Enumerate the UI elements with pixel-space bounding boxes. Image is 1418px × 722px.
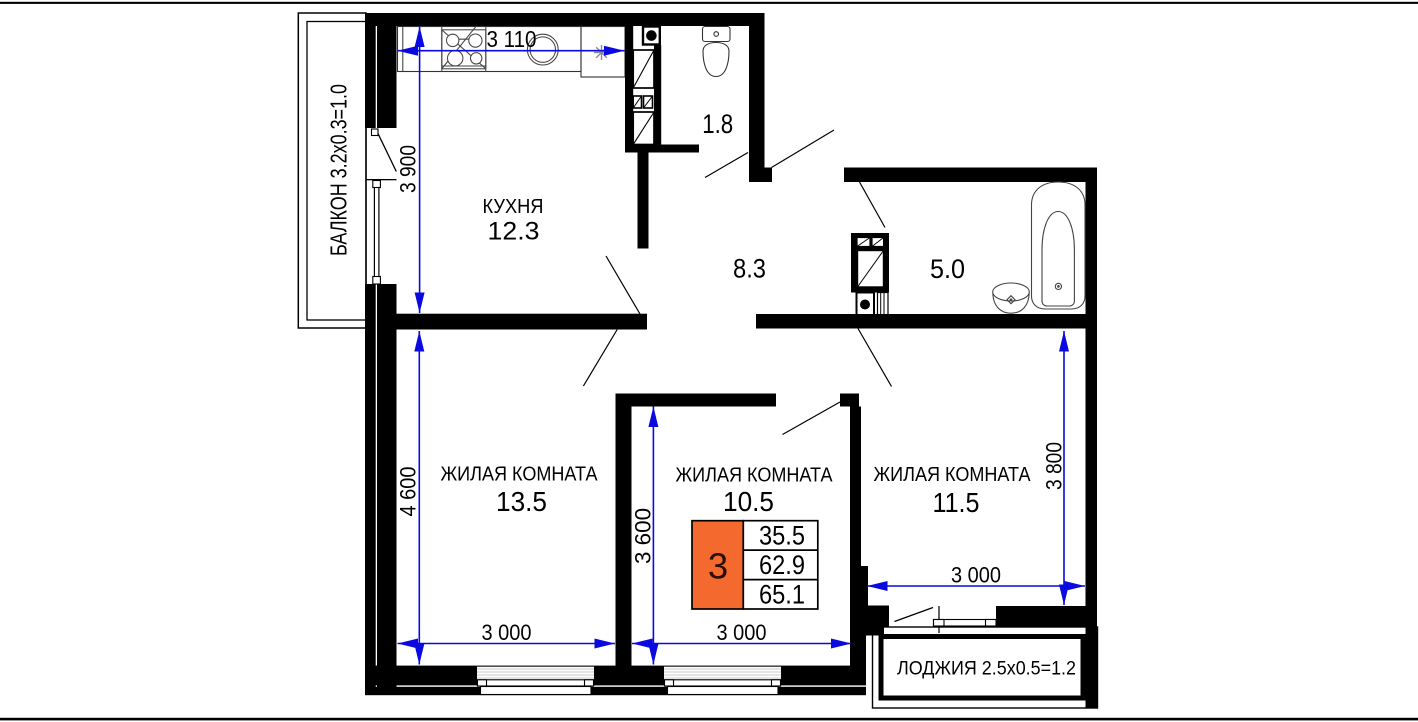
svg-text:3 110: 3 110 bbox=[487, 26, 537, 52]
svg-text:62.9: 62.9 bbox=[759, 550, 805, 580]
svg-text:ЖИЛАЯ КОМНАТА: ЖИЛАЯ КОМНАТА bbox=[441, 463, 598, 486]
svg-text:12.3: 12.3 bbox=[488, 218, 540, 246]
svg-text:3: 3 bbox=[708, 546, 728, 587]
svg-text:11.5: 11.5 bbox=[933, 487, 980, 518]
svg-text:8.3: 8.3 bbox=[733, 254, 766, 284]
svg-text:10.5: 10.5 bbox=[723, 486, 774, 517]
svg-text:1.8: 1.8 bbox=[702, 109, 733, 139]
svg-text:ЛОДЖИЯ 2.5х0.5=1.2: ЛОДЖИЯ 2.5х0.5=1.2 bbox=[897, 659, 1076, 680]
svg-text:КУХНЯ: КУХНЯ bbox=[483, 195, 544, 218]
svg-text:65.1: 65.1 bbox=[759, 580, 805, 610]
svg-text:3 900: 3 900 bbox=[396, 145, 421, 193]
svg-text:3 600: 3 600 bbox=[630, 508, 655, 564]
svg-text:3 000: 3 000 bbox=[717, 620, 767, 645]
svg-text:БАЛКОН 3.2х0.3=1.0: БАЛКОН 3.2х0.3=1.0 bbox=[326, 84, 352, 256]
svg-text:3 000: 3 000 bbox=[951, 562, 1001, 587]
svg-text:ЖИЛАЯ КОМНАТА: ЖИЛАЯ КОМНАТА bbox=[874, 463, 1031, 486]
svg-text:3 800: 3 800 bbox=[1042, 442, 1067, 490]
svg-text:35.5: 35.5 bbox=[759, 521, 805, 551]
svg-text:4 600: 4 600 bbox=[396, 467, 421, 517]
svg-text:5.0: 5.0 bbox=[930, 254, 965, 284]
svg-text:13.5: 13.5 bbox=[496, 486, 547, 517]
svg-text:ЖИЛАЯ КОМНАТА: ЖИЛАЯ КОМНАТА bbox=[676, 464, 833, 487]
svg-text:3 000: 3 000 bbox=[482, 620, 532, 645]
